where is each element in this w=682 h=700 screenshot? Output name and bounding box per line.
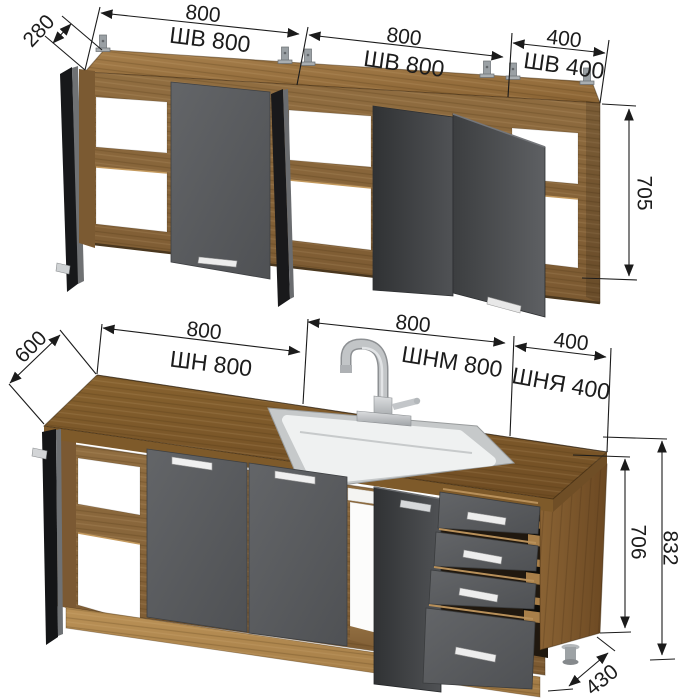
dim-wall-1-width: 800 xyxy=(184,2,221,27)
dim-base-3-width: 400 xyxy=(552,329,589,354)
base-cabinet-1-open-door xyxy=(32,429,63,645)
wall-left-gable xyxy=(79,69,95,248)
base-cabinet-2-door xyxy=(249,463,347,646)
dim-base-carcass-height: 706 xyxy=(628,524,649,559)
dim-wall-3-width: 400 xyxy=(545,26,582,51)
dim-base-total-height: 832 xyxy=(660,530,681,565)
mounting-bracket xyxy=(506,63,520,80)
mounting-bracket xyxy=(96,35,110,52)
dim-base-1-width: 800 xyxy=(185,318,222,343)
base-cabinet-1-door xyxy=(147,449,247,632)
wall-right-gable xyxy=(586,101,600,303)
wall-cabinets-drawing xyxy=(56,35,600,317)
drawer-stack xyxy=(423,489,540,689)
mounting-bracket xyxy=(278,47,292,64)
dim-wall-height: 705 xyxy=(634,175,655,210)
wall-cabinet-1-door xyxy=(171,82,270,279)
adjustable-foot xyxy=(562,644,580,665)
wall-cabinet-2-door xyxy=(373,106,453,296)
mounting-bracket xyxy=(480,61,494,78)
dim-wall-2-width: 800 xyxy=(385,24,422,49)
dim-base-2-width: 800 xyxy=(394,312,431,337)
kitchen-dimension-drawing: 280 800 ШВ 800 800 ШВ 800 400 ШВ 400 705… xyxy=(0,0,682,700)
drawer-4 xyxy=(423,608,535,689)
wall-cabinet-2-open-door xyxy=(453,114,545,317)
base-cabinets-drawing xyxy=(32,344,607,697)
